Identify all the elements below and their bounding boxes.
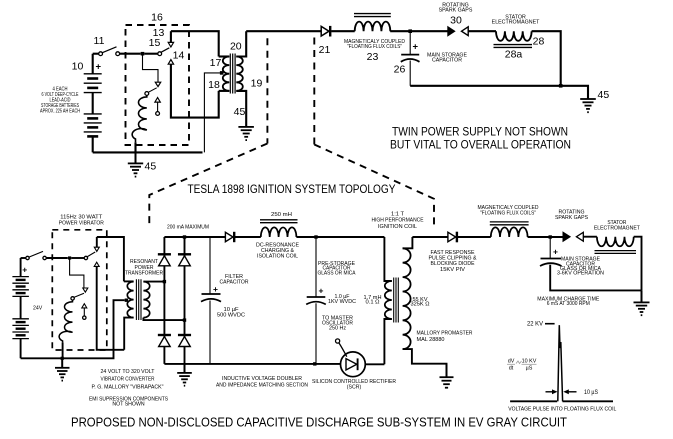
svg-text:APROX. 225 AH EACH: APROX. 225 AH EACH (40, 108, 80, 114)
svg-text:POWER VIBRATOR: POWER VIBRATOR (59, 220, 104, 226)
svg-text:22 KV: 22 KV (527, 321, 544, 328)
svg-text:26: 26 (394, 64, 406, 76)
svg-text:CAPACITOR: CAPACITOR (220, 280, 249, 286)
svg-text:+: + (96, 62, 102, 73)
svg-text:1:1 T: 1:1 T (391, 211, 405, 217)
svg-text:TRANSFORMER: TRANSFORMER (125, 270, 163, 276)
svg-text:13: 13 (153, 27, 165, 39)
svg-text:14: 14 (173, 50, 185, 62)
svg-text:dV: dV (508, 359, 515, 365)
svg-text:17: 17 (210, 57, 222, 69)
svg-text:28a: 28a (505, 49, 523, 61)
svg-text:500 WVDC: 500 WVDC (217, 313, 245, 319)
svg-text:NOT SHOWN: NOT SHOWN (112, 401, 144, 407)
svg-text:GLASS OR MICA: GLASS OR MICA (318, 271, 356, 277)
svg-text:15KV PIV: 15KV PIV (440, 267, 466, 273)
svg-text:45: 45 (234, 106, 246, 118)
svg-text:3-6KV OPERATION: 3-6KV OPERATION (557, 271, 604, 277)
svg-text:+: + (213, 284, 218, 294)
svg-text:AND IMPEDANCE MATCHING SECTION: AND IMPEDANCE MATCHING SECTION (216, 383, 308, 389)
svg-text:20: 20 (230, 41, 242, 53)
svg-text:+: + (319, 286, 324, 296)
svg-text:VIBRATOR CONVERTER: VIBRATOR CONVERTER (101, 377, 155, 383)
svg-text:P. G. MALLORY "VIBRAPACK": P. G. MALLORY "VIBRAPACK" (92, 385, 164, 391)
svg-text:INDUCTIVE VOLTAGE DOUBLER: INDUCTIVE VOLTAGE DOUBLER (222, 376, 302, 382)
svg-text:10 µS: 10 µS (584, 389, 598, 396)
svg-text:HIGH PERFORMANCE: HIGH PERFORMANCE (372, 218, 425, 224)
svg-text:250 mH: 250 mH (271, 212, 292, 218)
svg-text:"FLOATING FLUX COILS": "FLOATING FLUX COILS" (480, 210, 536, 216)
svg-text:SPARK GAPS: SPARK GAPS (439, 8, 473, 14)
svg-text:10 KV: 10 KV (522, 359, 537, 365)
svg-text:SPARK GAPS: SPARK GAPS (555, 215, 589, 221)
svg-text:16: 16 (151, 12, 163, 24)
svg-text:11: 11 (94, 35, 105, 47)
svg-text:0.1 Ω: 0.1 Ω (366, 300, 380, 306)
svg-text:18: 18 (208, 79, 220, 91)
svg-text:"FLOATING FLUX COILS": "FLOATING FLUX COILS" (347, 44, 402, 50)
svg-text:CAPACITOR: CAPACITOR (432, 58, 462, 64)
svg-text:TWIN POWER SUPPLY NOT SHOWN: TWIN POWER SUPPLY NOT SHOWN (392, 125, 568, 139)
svg-text:BUT VITAL TO OVERALL OPERATION: BUT VITAL TO OVERALL OPERATION (390, 138, 571, 152)
svg-text:+: + (413, 42, 419, 53)
svg-text:30: 30 (450, 15, 462, 27)
svg-text:VOLTAGE PULSE INTO FLOATING FL: VOLTAGE PULSE INTO FLOATING FLUX COIL (508, 406, 616, 412)
svg-text:IGNITION COIL: IGNITION COIL (378, 224, 417, 230)
svg-text:24V: 24V (33, 306, 43, 312)
svg-text:6 mS AT 3000 RPM: 6 mS AT 3000 RPM (547, 301, 590, 307)
svg-text:MALLORY PROMASTER: MALLORY PROMASTER (417, 331, 473, 337)
svg-text:45: 45 (145, 161, 157, 173)
svg-text:45: 45 (598, 89, 610, 101)
svg-text:(SCR): (SCR) (347, 384, 362, 390)
svg-text:dt: dt (509, 365, 514, 371)
svg-text:µS: µS (526, 365, 533, 371)
svg-text:TESLA 1898 IGNITION SYSTEM TOP: TESLA 1898 IGNITION SYSTEM TOPOLOGY (188, 182, 396, 196)
svg-text:ELECTROMAGNET: ELECTROMAGNET (594, 226, 641, 232)
svg-text:10: 10 (72, 61, 84, 73)
svg-text:23: 23 (367, 51, 379, 63)
svg-text:ISOLATION COIL: ISOLATION COIL (257, 254, 298, 260)
svg-text:ELECTROMAGNET: ELECTROMAGNET (492, 20, 540, 26)
svg-text:+: + (553, 247, 558, 257)
svg-text:200 mA MAXIMUM: 200 mA MAXIMUM (167, 224, 209, 230)
svg-text:1KV WVDC: 1KV WVDC (328, 299, 356, 305)
svg-text:28: 28 (533, 36, 545, 48)
svg-text:19: 19 (251, 78, 263, 90)
svg-text:24 VOLT TO 320 VOLT: 24 VOLT TO 320 VOLT (101, 369, 156, 375)
svg-text:PROPOSED NON-DISCLOSED CAPACIT: PROPOSED NON-DISCLOSED CAPACITIVE DISCHA… (71, 416, 567, 430)
svg-text:+: + (22, 265, 27, 275)
svg-text:250 Hz: 250 Hz (329, 326, 346, 332)
svg-text:325K Ω: 325K Ω (411, 302, 430, 308)
svg-text:21: 21 (319, 44, 331, 56)
svg-text:MAL 28880: MAL 28880 (417, 337, 445, 343)
